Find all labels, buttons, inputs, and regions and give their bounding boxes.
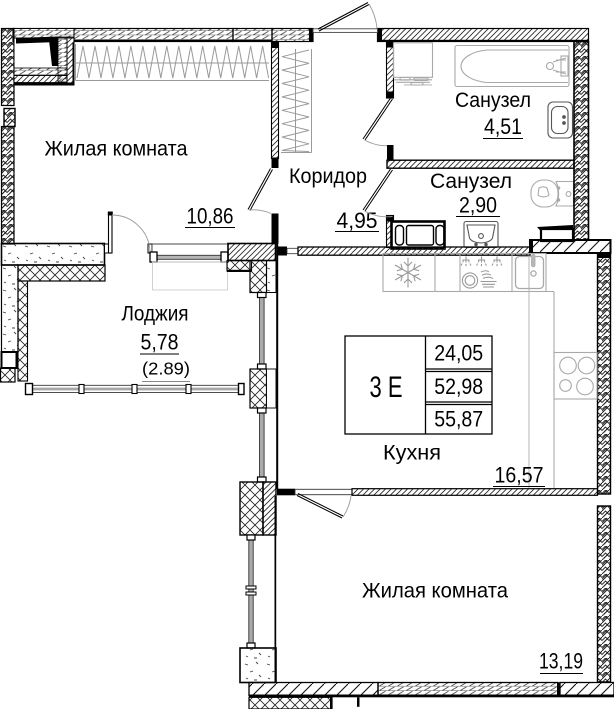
svg-text:24,05: 24,05 — [434, 341, 483, 366]
svg-text:(2.89): (2.89) — [142, 359, 190, 379]
svg-text:4,51: 4,51 — [484, 114, 522, 139]
svg-text:4,95: 4,95 — [337, 208, 378, 233]
svg-text:Санузел: Санузел — [455, 89, 531, 112]
svg-text:Санузел: Санузел — [430, 170, 512, 193]
svg-text:5,78: 5,78 — [141, 330, 179, 355]
svg-text:52,98: 52,98 — [434, 374, 483, 399]
svg-text:Кухня: Кухня — [383, 442, 441, 465]
svg-text:Жилая комната: Жилая комната — [362, 580, 508, 603]
svg-text:10,86: 10,86 — [187, 204, 234, 229]
svg-text:2,90: 2,90 — [459, 193, 497, 218]
svg-text:16,57: 16,57 — [495, 463, 544, 488]
svg-text:Жилая комната: Жилая комната — [45, 138, 188, 161]
svg-text:55,87: 55,87 — [434, 407, 483, 432]
svg-text:Коридор: Коридор — [289, 165, 367, 188]
svg-text:3 Е: 3 Е — [370, 371, 403, 404]
svg-text:Лоджия: Лоджия — [122, 303, 189, 326]
svg-text:13,19: 13,19 — [539, 649, 583, 674]
